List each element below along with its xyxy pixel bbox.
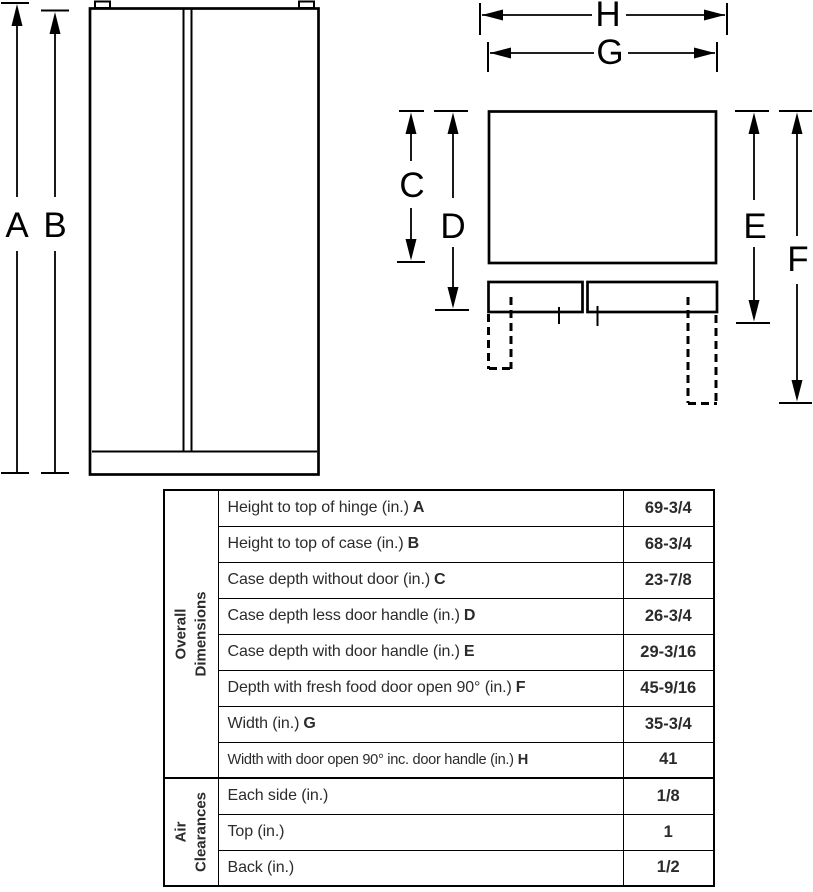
table-row: Width (in.)G 35-3/4	[164, 706, 714, 742]
right-hinge-cap	[299, 2, 314, 9]
row-value: 1/2	[623, 850, 714, 886]
arrowhead-down-icon	[749, 300, 760, 322]
dim-label-e: E	[743, 207, 766, 246]
dimension-b: B	[41, 11, 69, 474]
dim-letter: A	[413, 499, 424, 516]
arrowhead-down-icon	[792, 380, 803, 402]
right-door-plan-rect	[588, 282, 718, 312]
table-row: Overall Dimensions Height to top of hing…	[164, 490, 714, 526]
dim-label-h: H	[595, 0, 620, 34]
dim-label-g: G	[596, 33, 623, 72]
dim-letter: B	[408, 535, 419, 552]
arrowhead-up-icon	[406, 113, 417, 135]
dim-label-a: A	[5, 206, 29, 245]
row-label: Back (in.)	[218, 850, 623, 886]
arrowhead-left-icon	[490, 48, 511, 59]
dim-label-f: F	[787, 240, 808, 279]
dimension-a: A	[1, 3, 29, 473]
dim-label-c: C	[399, 166, 424, 205]
fridge-front-view	[90, 2, 319, 475]
dimension-d: D	[434, 111, 469, 310]
row-value: 35-3/4	[623, 706, 714, 742]
dimension-c: C	[397, 111, 425, 262]
arrowhead-left-icon	[482, 10, 503, 21]
section-header-air-clearances: Air Clearances	[164, 778, 218, 886]
dim-letter: E	[464, 643, 475, 660]
arrowhead-up-icon	[50, 12, 61, 34]
dimension-h: H	[480, 0, 727, 35]
dimensions-table: Overall Dimensions Height to top of hing…	[163, 489, 715, 887]
section-label: Air Clearances	[172, 792, 211, 872]
section-header-overall-dimensions: Overall Dimensions	[164, 490, 218, 778]
row-label: Top (in.)	[218, 814, 623, 850]
row-label: Case depth less door handle (in.)D	[218, 598, 623, 634]
arrowhead-up-icon	[448, 113, 459, 135]
section-label: Overall Dimensions	[172, 591, 211, 676]
table-row: Back (in.) 1/2	[164, 850, 714, 886]
dim-label-d: D	[440, 207, 465, 246]
left-door-plan-rect	[489, 282, 583, 312]
arrowhead-down-icon	[406, 239, 417, 261]
row-value: 45-9/16	[623, 670, 714, 706]
row-value: 23-7/8	[623, 562, 714, 598]
fridge-body	[90, 9, 319, 475]
row-value: 1/8	[623, 778, 714, 814]
dim-letter: F	[516, 679, 526, 696]
dim-letter: C	[434, 571, 445, 588]
arrowhead-up-icon	[792, 113, 803, 135]
dimension-f: F	[779, 111, 812, 403]
table-row: Case depth without door (in.)C 23-7/8	[164, 562, 714, 598]
dim-label-b: B	[43, 206, 66, 245]
row-label: Width with door open 90° inc. door handl…	[218, 742, 623, 778]
row-label: Height to top of case (in.)B	[218, 526, 623, 562]
refrigerator-spec-sheet: A B	[0, 0, 813, 892]
row-value: 68-3/4	[623, 526, 714, 562]
table-row: Top (in.) 1	[164, 814, 714, 850]
table-row: Height to top of case (in.)B 68-3/4	[164, 526, 714, 562]
dim-letter: H	[518, 752, 528, 768]
row-label: Case depth with door handle (in.)E	[218, 634, 623, 670]
dimension-e: E	[735, 111, 770, 323]
row-label: Case depth without door (in.)C	[218, 562, 623, 598]
row-value: 1	[623, 814, 714, 850]
left-hinge-cap	[95, 2, 110, 9]
dimension-diagrams: A B	[0, 0, 813, 490]
arrowhead-up-icon	[12, 4, 23, 26]
row-value: 29-3/16	[623, 634, 714, 670]
row-value: 69-3/4	[623, 490, 714, 526]
case-plan-rect	[489, 112, 716, 264]
fridge-top-view	[489, 112, 718, 404]
arrowhead-up-icon	[749, 113, 760, 135]
row-label: Each side (in.)	[218, 778, 623, 814]
table-row: Case depth less door handle (in.)D 26-3/…	[164, 598, 714, 634]
table-row: Air Clearances Each side (in.) 1/8	[164, 778, 714, 814]
dim-letter: G	[303, 715, 315, 732]
table-row: Depth with fresh food door open 90° (in.…	[164, 670, 714, 706]
row-value: 26-3/4	[623, 598, 714, 634]
arrowhead-down-icon	[448, 287, 459, 309]
row-label: Depth with fresh food door open 90° (in.…	[218, 670, 623, 706]
row-label: Height to top of hinge (in.)A	[218, 490, 623, 526]
row-value: 41	[623, 742, 714, 778]
dimension-g: G	[488, 33, 717, 72]
table-row: Case depth with door handle (in.)E 29-3/…	[164, 634, 714, 670]
table-row: Width with door open 90° inc. door handl…	[164, 742, 714, 778]
arrowhead-right-icon	[704, 10, 725, 21]
dim-letter: D	[464, 607, 475, 624]
row-label: Width (in.)G	[218, 706, 623, 742]
arrowhead-right-icon	[694, 48, 715, 59]
